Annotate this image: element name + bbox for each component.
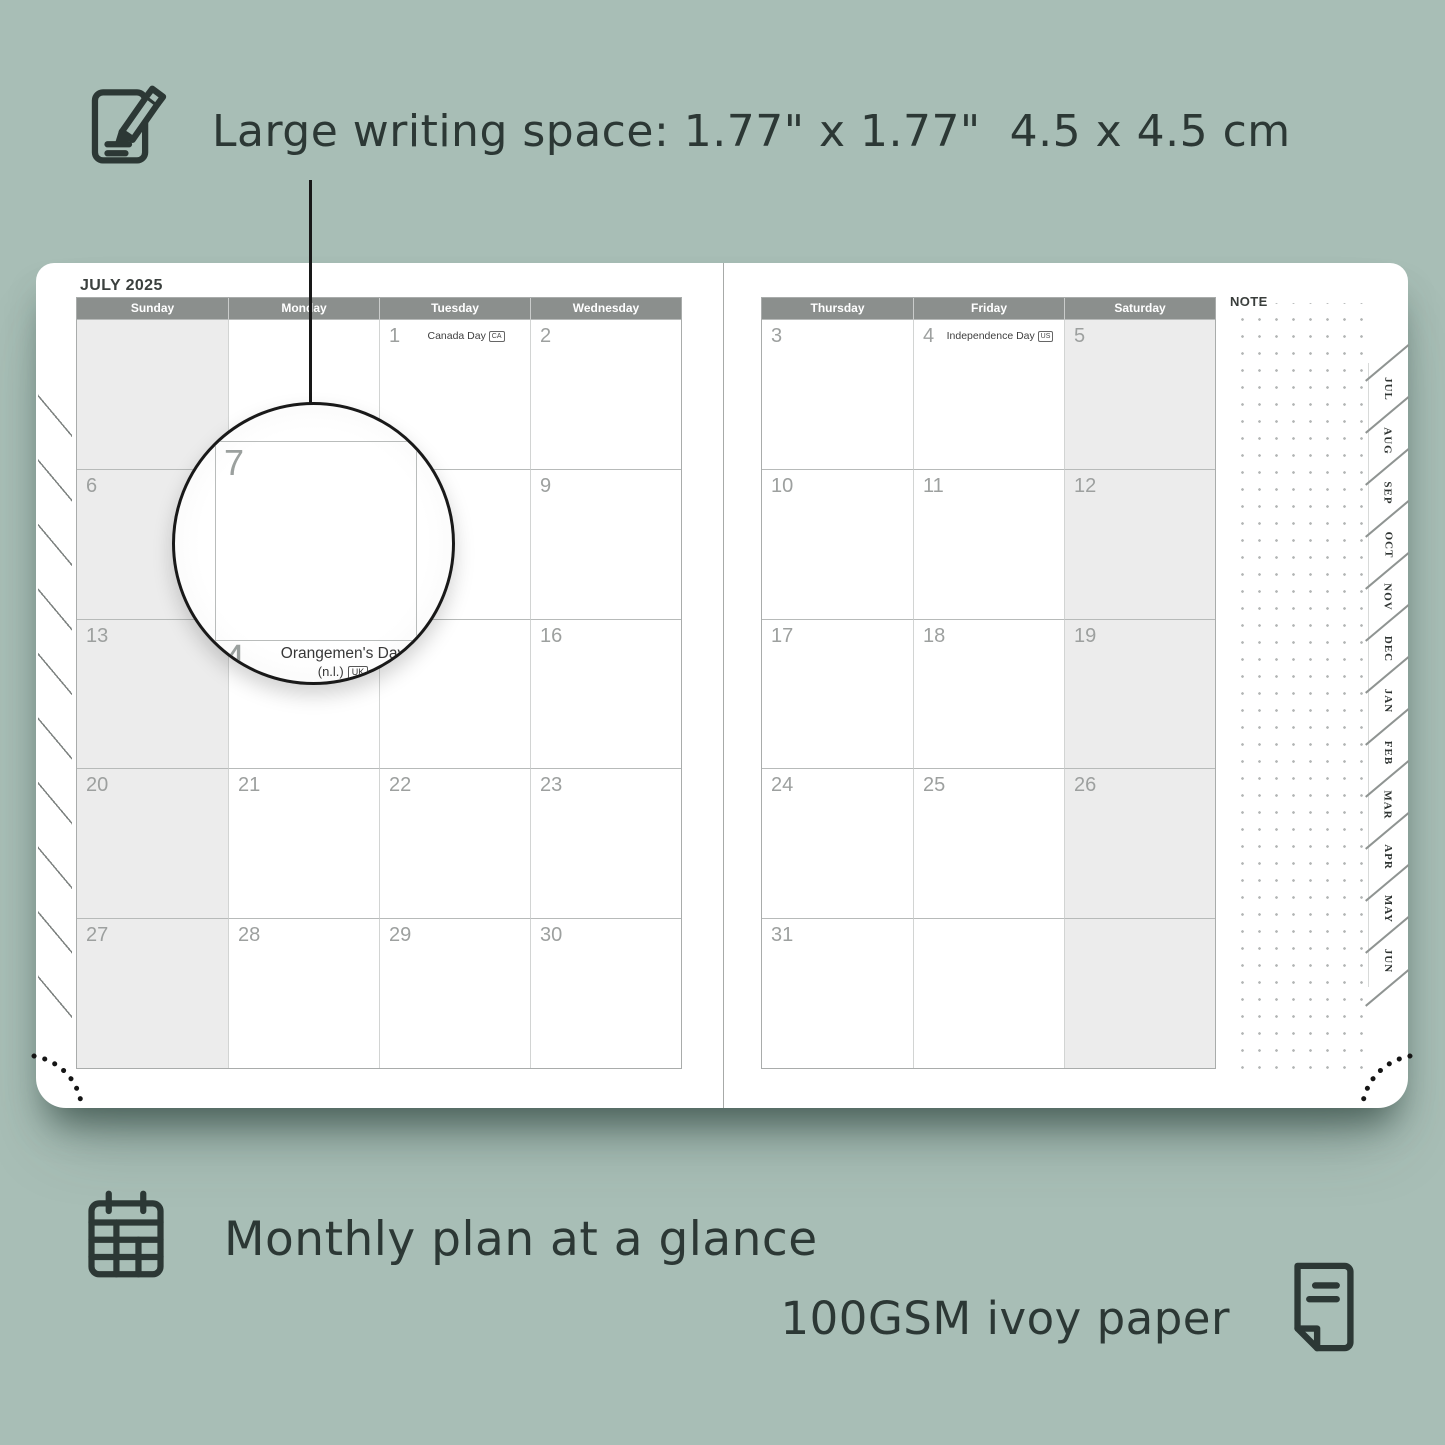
month-tab-dec: DEC [1369,623,1407,675]
day-number: 11 [923,475,944,498]
uk-badge: UK [348,666,369,679]
day-number: 4 [923,325,934,348]
calendar-cell: 5 [1064,319,1215,469]
month-tab-jun: JUN [1369,935,1407,987]
calendar-cell: 4Independence Day US [913,319,1064,469]
day-number: 29 [389,924,411,947]
month-tab-label: JUL [1382,377,1394,401]
calendar-cell: 2 [530,319,681,469]
magnified-writing-space: 7 [215,441,417,641]
day-number: 18 [923,625,945,648]
calendar-cell: 27 [77,918,228,1068]
month-title: JULY 2025 [80,277,163,295]
month-tab-label: DEC [1382,636,1394,662]
month-tab-label: JAN [1382,689,1394,713]
magnified-day-number: 7 [224,442,244,484]
month-tab-may: MAY [1369,883,1407,935]
month-tab-label: SEP [1382,481,1394,504]
calendar-cell: 19 [1064,619,1215,769]
day-number: 24 [771,774,793,797]
month-tab-apr: APR [1369,831,1407,883]
month-tab-jul: JUL [1369,363,1407,415]
day-number: 5 [1074,325,1085,348]
calendar-icon [80,1186,172,1286]
paper-heading: 100GSM ivoy paper [781,1292,1230,1345]
day-number: 19 [1074,625,1096,648]
day-header-monday: Monday [228,298,379,319]
calendar-right-page: ThursdayFridaySaturday 34Independence Da… [761,297,1216,1069]
day-number: 22 [389,774,411,797]
month-tab-oct: OCT [1369,519,1407,571]
month-tab-label: AUG [1382,427,1394,454]
calendar-cell: 28 [228,918,379,1068]
magnifier-callout-line [309,180,312,406]
day-header-tuesday: Tuesday [379,298,530,319]
month-tab-jan: JAN [1369,675,1407,727]
calendar-cell: 31 [762,918,913,1068]
partial-day-number: 4 [223,637,245,682]
holiday-label: Independence Day US [940,329,1060,343]
calendar-cell: 18 [913,619,1064,769]
month-tab-label: MAY [1382,895,1394,923]
calendar-cell: 11 [913,469,1064,619]
day-header-row: SundayMondayTuesdayWednesday [77,298,681,319]
paper-sheet-icon [1274,1260,1372,1358]
calendar-cell: 25 [913,768,1064,918]
day-number: 21 [238,774,260,797]
day-number: 2 [540,325,551,348]
pencil-note-icon [86,74,172,172]
day-number: 25 [923,774,945,797]
calendar-cell: 13 [77,619,228,769]
monthly-plan-heading: Monthly plan at a glance [224,1212,818,1267]
day-header-thursday: Thursday [762,298,913,319]
planner-product-image: Large writing space: 1.77" x 1.77" 4.5 x… [0,0,1445,1445]
calendar-cell [1064,918,1215,1068]
month-tab-label: APR [1382,844,1394,870]
calendar-cell: 30 [530,918,681,1068]
calendar-cell: 3 [762,319,913,469]
day-header-wednesday: Wednesday [530,298,681,319]
day-number: 20 [86,774,108,797]
month-tab-sep: SEP [1369,467,1407,519]
day-number: 23 [540,774,562,797]
day-number: 9 [540,475,551,498]
calendar-cell: 9 [530,469,681,619]
day-header-friday: Friday [913,298,1064,319]
day-header-row: ThursdayFridaySaturday [762,298,1215,319]
calendar-cell: 23 [530,768,681,918]
day-number: 10 [771,475,793,498]
month-tab-label: NOV [1382,583,1394,610]
month-tab-strip: JULAUGSEPOCTNOVDECJANFEBMARAPRMAYJUN [1368,363,1407,987]
calendar-cell: 21 [228,768,379,918]
calendar-grid-right: 34Independence Day US5101112171819242526… [762,319,1215,1068]
day-number: 3 [771,325,782,348]
country-badge: CA [489,331,505,342]
month-tab-feb: FEB [1369,727,1407,779]
day-number: 28 [238,924,260,947]
magnified-holiday: Orangemen's Day (n.l.)UK [253,645,433,679]
month-tab-label: OCT [1382,532,1394,559]
month-tab-mar: MAR [1369,779,1407,831]
calendar-cell: 24 [762,768,913,918]
calendar-cell: 12 [1064,469,1215,619]
day-number: 26 [1074,774,1096,797]
writing-space-heading: Large writing space: 1.77" x 1.77" 4.5 x… [212,106,1291,157]
calendar-cell: 10 [762,469,913,619]
magnifier-circle: 7 4 Orangemen's Day (n.l.)UK [172,402,455,685]
country-badge: US [1038,331,1054,342]
day-number: 6 [86,475,97,498]
day-number: 16 [540,625,562,648]
day-number: 13 [86,625,108,648]
day-number: 12 [1074,475,1096,498]
day-number: 30 [540,924,562,947]
calendar-cell: 17 [762,619,913,769]
month-tab-aug: AUG [1369,415,1407,467]
book-spine [723,263,724,1108]
holiday-label: Canada Day CA [406,329,526,343]
planner-book: JULY 2025 SundayMondayTuesdayWednesday 1… [36,263,1408,1108]
calendar-cell [913,918,1064,1068]
calendar-cell: 16 [530,619,681,769]
month-tab-nov: NOV [1369,571,1407,623]
page-edge-tabs-decoration [38,392,72,1040]
day-header-saturday: Saturday [1064,298,1215,319]
calendar-cell: 29 [379,918,530,1068]
day-number: 1 [389,325,400,348]
month-tab-label: MAR [1382,790,1394,819]
month-tab-label: FEB [1382,741,1394,765]
day-number: 17 [771,625,793,648]
note-dot-grid [1228,303,1370,1071]
calendar-left-page: SundayMondayTuesdayWednesday 1Canada Day… [76,297,682,1069]
calendar-cell: 20 [77,768,228,918]
day-header-sunday: Sunday [77,298,228,319]
day-number: 27 [86,924,108,947]
calendar-cell [77,319,228,469]
calendar-cell: 26 [1064,768,1215,918]
day-number: 31 [771,924,793,947]
calendar-cell: 22 [379,768,530,918]
month-tab-label: JUN [1382,949,1394,973]
